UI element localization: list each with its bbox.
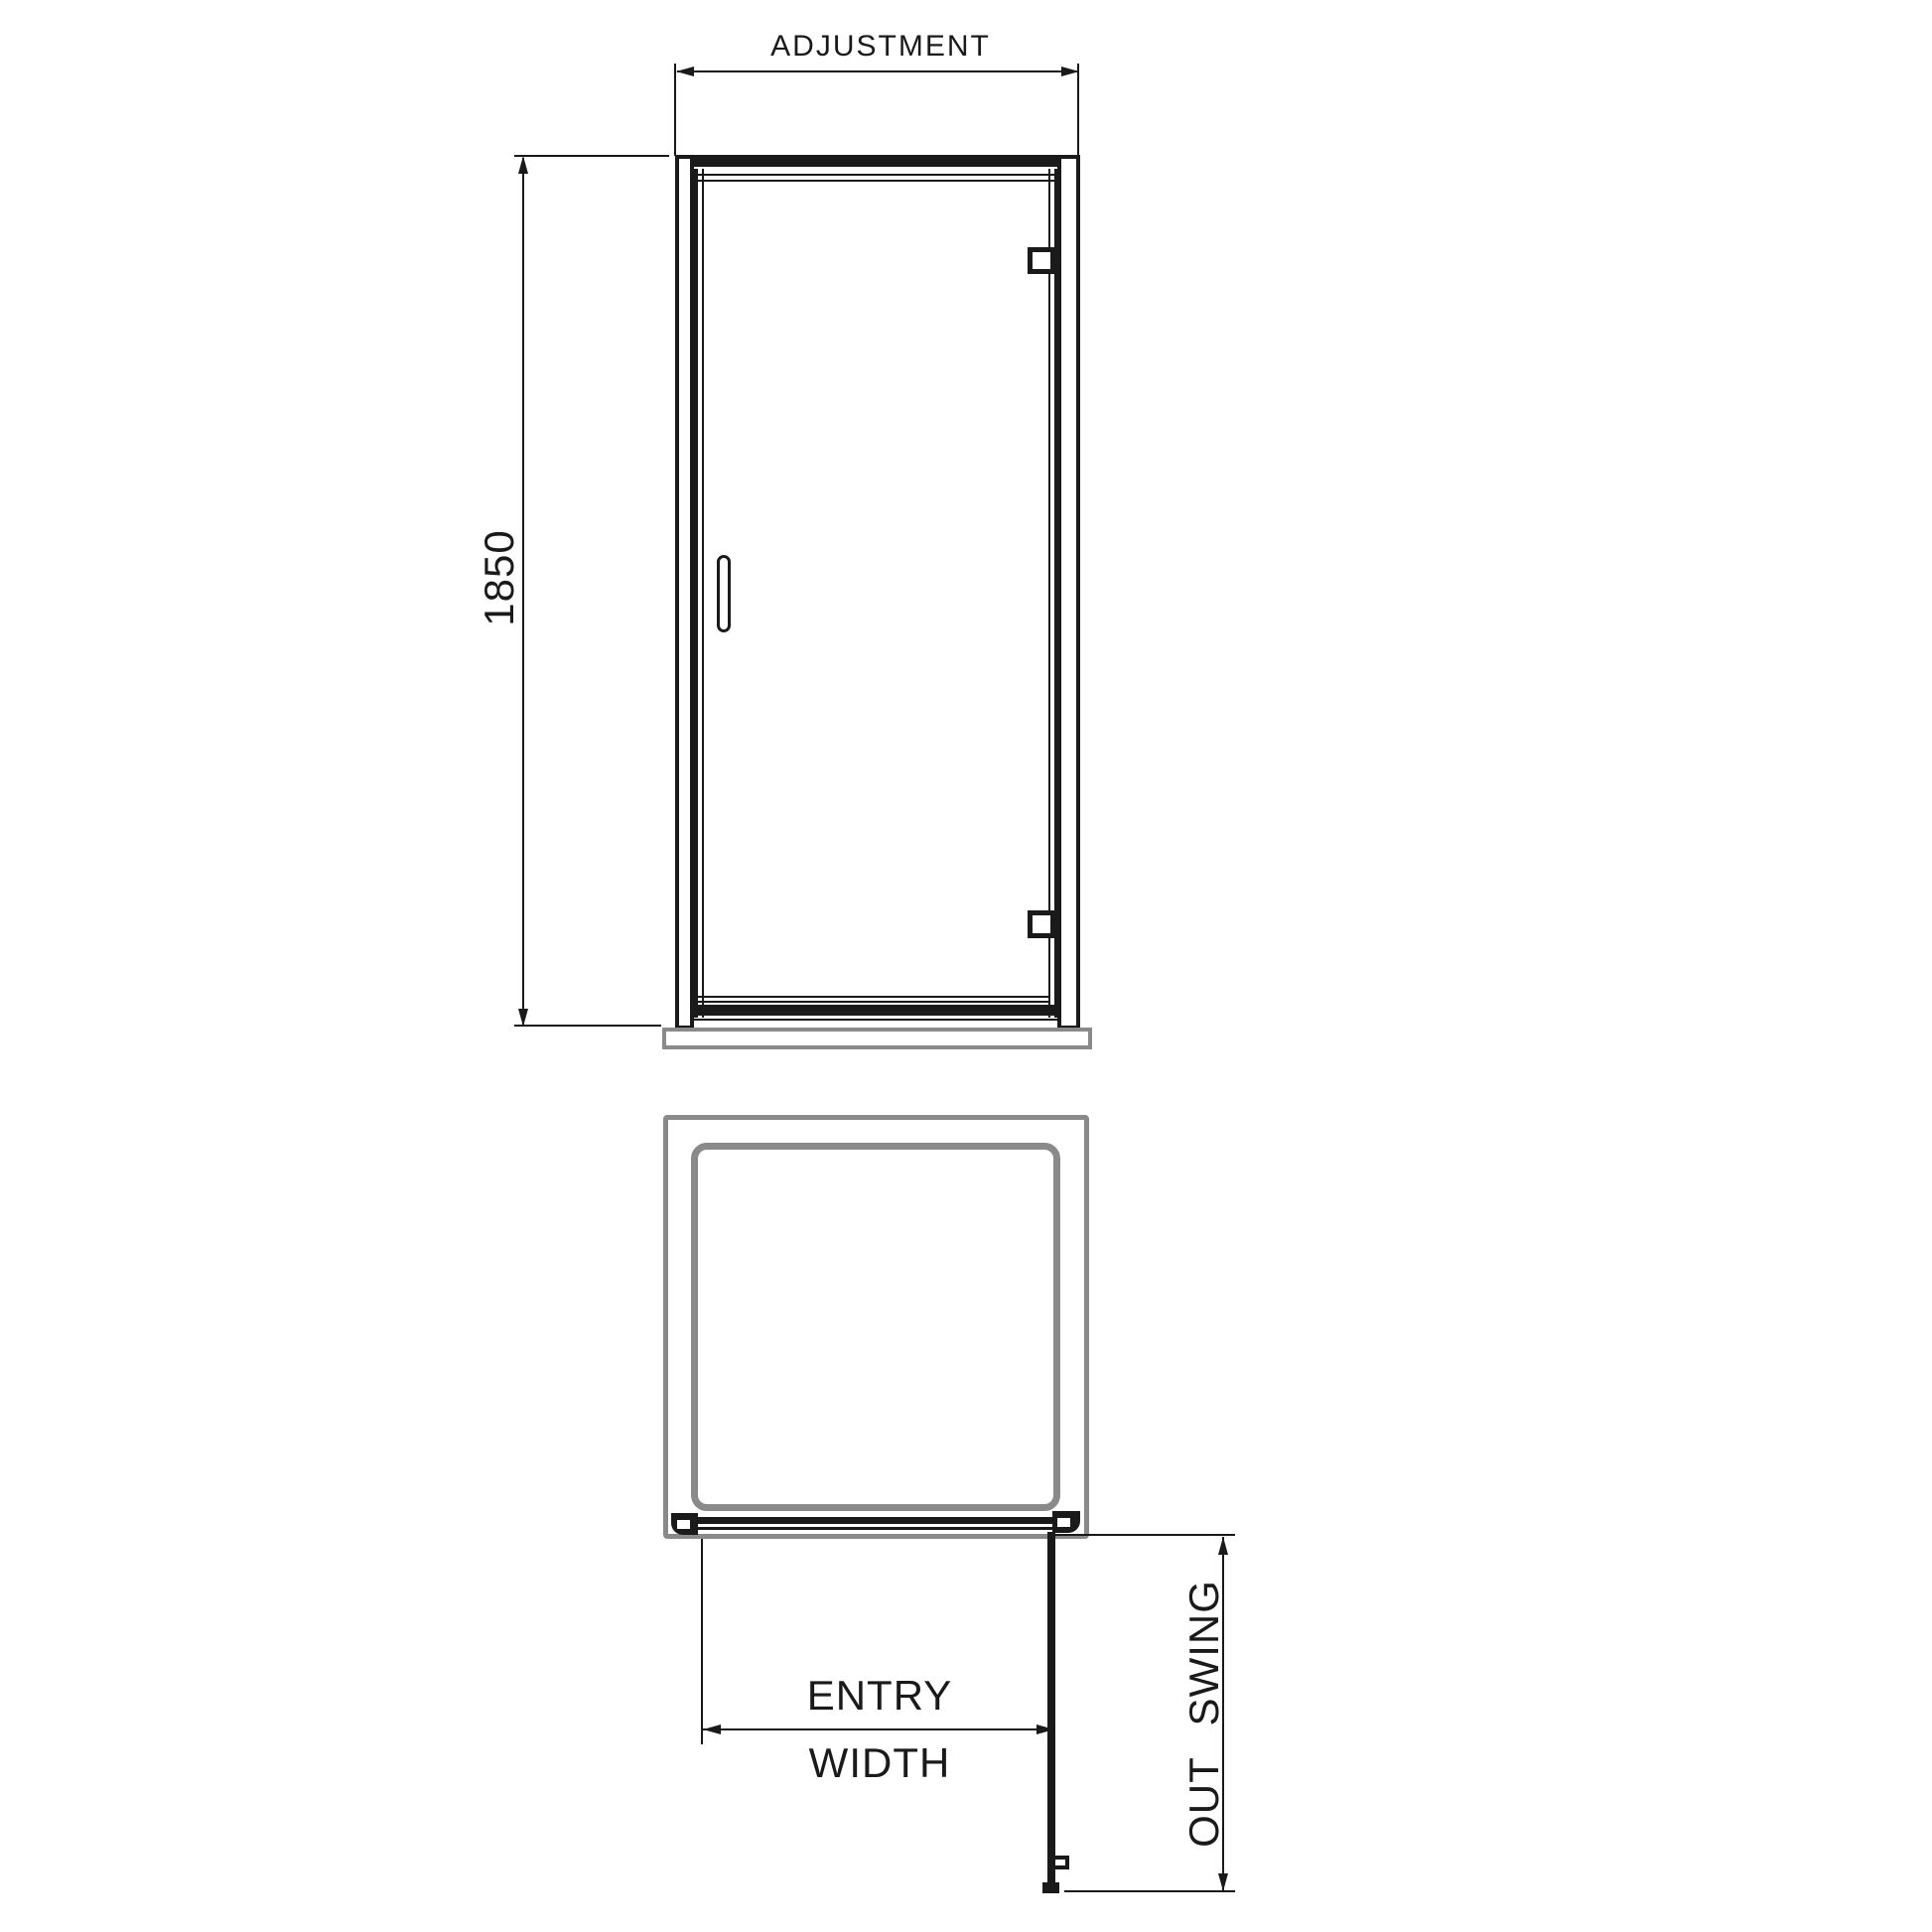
- out-swing-arrow-up: [1218, 1537, 1228, 1555]
- out-swing-arrow-down: [1218, 1873, 1228, 1891]
- glass-bottom-edge-lower: [698, 1001, 1048, 1003]
- out-swing-extension-line-top: [1055, 1534, 1235, 1536]
- height-dimension-label: 1850: [477, 479, 522, 677]
- entry-width-extension-line-left: [701, 1539, 703, 1744]
- open-door-foot: [1042, 1882, 1059, 1893]
- out-swing-dimension-label: OUT SWING: [1181, 1565, 1227, 1863]
- door-bottom-rail: [694, 1005, 1058, 1016]
- door-right-stile-inner: [1048, 169, 1050, 1018]
- plan-tray-inner: [691, 1143, 1060, 1511]
- entry-width-label-line2: WIDTH: [756, 1739, 1004, 1787]
- hinge-bottom: [1028, 910, 1055, 938]
- entry-width-arrow-right: [1036, 1725, 1054, 1734]
- door-handle: [717, 555, 731, 632]
- door-bottom-rail-seal: [694, 1019, 1058, 1021]
- adjustment-dimension-label: ADJUSTMENT: [732, 30, 1030, 64]
- frame-right-post: [1057, 155, 1080, 1030]
- door-left-stile-outer: [693, 169, 698, 1018]
- out-swing-extension-line-bottom: [1064, 1890, 1235, 1892]
- height-dimension-line: [522, 158, 524, 1025]
- door-left-stile-inner: [702, 169, 704, 1018]
- height-extension-line-bottom: [514, 1025, 661, 1027]
- height-arrow-up: [518, 156, 528, 174]
- glass-bottom-edge-upper: [698, 996, 1048, 998]
- open-door-leaf: [1047, 1532, 1055, 1889]
- entry-width-label-line1: ENTRY: [756, 1672, 1004, 1720]
- door-right-stile-outer: [1054, 169, 1057, 1018]
- shower-tray-elevation: [662, 1028, 1092, 1049]
- sill-end-cap-left-notch: [677, 1520, 690, 1529]
- entry-width-dimension-line: [703, 1728, 1054, 1730]
- adjustment-extension-line-left: [674, 64, 676, 156]
- entry-width-arrow-left: [703, 1725, 721, 1734]
- glass-top-edge-outer: [696, 174, 1056, 176]
- adjustment-arrow-left: [676, 67, 694, 76]
- sill-end-cap-right-notch: [1057, 1518, 1070, 1527]
- technical-drawing: ADJUSTMENT 1850: [0, 0, 1932, 1932]
- adjustment-dimension-line: [677, 70, 1078, 72]
- glass-top-edge-inner: [696, 180, 1056, 182]
- height-extension-line-top: [514, 155, 669, 157]
- hinge-top: [1028, 247, 1055, 274]
- plan-door-sill-seal: [690, 1527, 1055, 1530]
- adjustment-extension-line-right: [1077, 64, 1079, 156]
- frame-left-post: [675, 155, 694, 1030]
- frame-top-bar: [675, 155, 1080, 167]
- plan-door-sill-bar: [690, 1517, 1055, 1524]
- open-door-handle: [1051, 1856, 1069, 1869]
